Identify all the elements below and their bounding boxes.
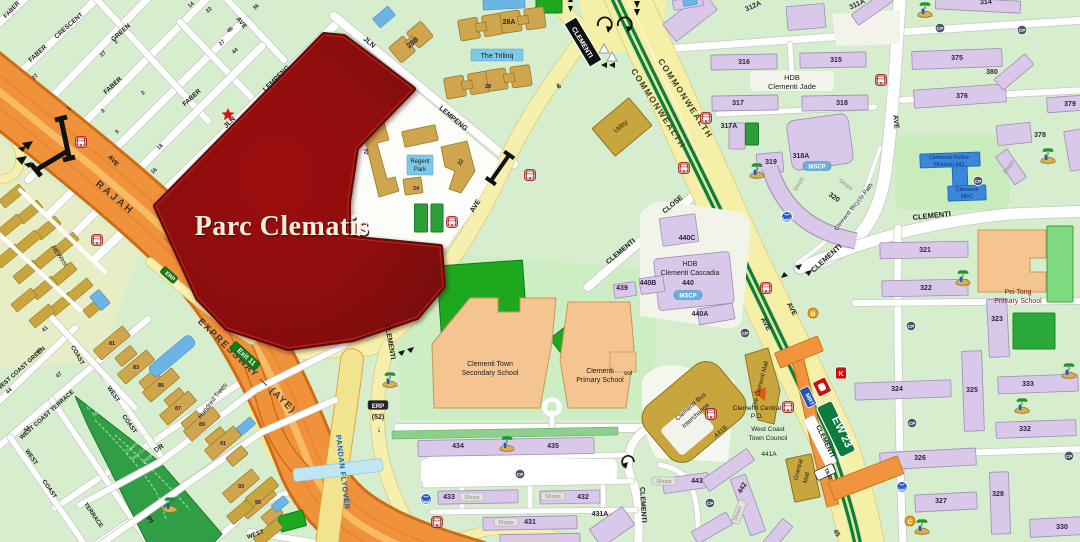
svg-text:317A: 317A <box>721 123 738 130</box>
svg-text:375: 375 <box>951 55 963 62</box>
svg-text:332: 332 <box>1019 426 1031 433</box>
svg-text:Division HQ: Division HQ <box>934 162 965 168</box>
svg-text:Clementi: Clementi <box>956 187 979 193</box>
svg-text:432: 432 <box>577 494 589 501</box>
svg-text:CP: CP <box>937 26 944 32</box>
svg-text:431A: 431A <box>592 511 609 518</box>
svg-text:Clementi Town: Clementi Town <box>467 361 513 368</box>
svg-text:440: 440 <box>682 280 694 287</box>
svg-text:440B: 440B <box>640 280 657 287</box>
svg-text:K: K <box>838 371 843 378</box>
svg-text:439: 439 <box>616 285 628 292</box>
svg-text:The Trilinq: The Trilinq <box>481 53 514 60</box>
svg-text:93: 93 <box>238 484 244 490</box>
svg-text:Clementi Central: Clementi Central <box>733 405 782 412</box>
svg-text:Clementi Police: Clementi Police <box>929 155 969 161</box>
svg-text:CP: CP <box>742 331 749 337</box>
svg-text:Shops: Shops <box>656 479 672 485</box>
svg-text:Pei Tong: Pei Tong <box>1004 289 1031 296</box>
svg-text:380: 380 <box>986 69 998 76</box>
svg-text:Primary School: Primary School <box>994 298 1042 305</box>
svg-text:B: B <box>811 311 816 318</box>
svg-text:431: 431 <box>524 519 536 526</box>
svg-text:24: 24 <box>413 186 420 192</box>
svg-text:28A: 28A <box>503 19 516 26</box>
svg-text:West Coast: West Coast <box>751 426 785 433</box>
svg-text:Shops: Shops <box>498 520 514 526</box>
svg-text:95: 95 <box>255 500 261 506</box>
svg-text:ool: ool <box>624 371 632 377</box>
svg-text:CP: CP <box>908 324 915 330</box>
svg-text:91: 91 <box>220 441 226 447</box>
svg-text:314: 314 <box>980 0 992 6</box>
svg-text:HDB: HDB <box>683 261 698 268</box>
svg-text:ERP: ERP <box>372 404 384 410</box>
svg-text:433: 433 <box>443 494 455 501</box>
svg-text:319: 319 <box>765 159 777 166</box>
svg-text:443: 443 <box>691 478 703 485</box>
svg-text:327: 327 <box>935 498 947 505</box>
svg-text:MSCP: MSCP <box>808 165 825 171</box>
svg-text:NPC: NPC <box>961 194 973 200</box>
svg-text:CP: CP <box>1066 454 1073 460</box>
svg-text:326: 326 <box>914 455 926 462</box>
svg-text:Clementi: Clementi <box>586 368 614 375</box>
svg-text:Shops: Shops <box>464 495 480 501</box>
svg-text:Town Council: Town Council <box>749 435 788 442</box>
svg-text:Primary School: Primary School <box>576 377 624 384</box>
svg-text:CP: CP <box>975 179 982 185</box>
svg-text:324: 324 <box>891 386 903 393</box>
svg-text:Secondary School: Secondary School <box>462 370 519 377</box>
svg-text:Park: Park <box>414 167 427 173</box>
svg-text:85: 85 <box>158 383 164 389</box>
svg-text:89: 89 <box>199 422 205 428</box>
svg-text:325: 325 <box>966 387 978 394</box>
svg-text:440A: 440A <box>692 311 709 318</box>
svg-text:441A: 441A <box>761 451 777 458</box>
svg-text:323: 323 <box>991 316 1003 323</box>
svg-text:435: 435 <box>547 443 559 450</box>
svg-text:Clementi Jade: Clementi Jade <box>768 82 816 91</box>
svg-text:Regent: Regent <box>410 159 430 165</box>
svg-text:↓: ↓ <box>377 424 382 434</box>
svg-text:317: 317 <box>732 100 744 107</box>
svg-text:26: 26 <box>364 148 371 155</box>
svg-text:376: 376 <box>956 93 968 100</box>
svg-text:434: 434 <box>452 443 464 450</box>
svg-text:321: 321 <box>919 247 931 254</box>
svg-text:322: 322 <box>920 285 932 292</box>
svg-text:Shops: Shops <box>545 494 561 500</box>
svg-text:440C: 440C <box>679 235 696 242</box>
svg-text:378: 378 <box>1034 132 1046 139</box>
svg-text:Clementi Cascadia: Clementi Cascadia <box>661 270 720 277</box>
svg-text:87: 87 <box>175 406 181 412</box>
svg-text:330: 330 <box>1056 524 1068 531</box>
svg-text:HDB: HDB <box>784 73 800 82</box>
svg-text:379: 379 <box>1064 101 1076 108</box>
svg-text:Parc Clematis: Parc Clematis <box>195 211 370 242</box>
svg-text:316: 316 <box>738 59 750 66</box>
svg-text:318: 318 <box>836 100 848 107</box>
svg-text:CP: CP <box>707 501 714 507</box>
svg-text:328: 328 <box>992 491 1004 498</box>
svg-text:CP: CP <box>909 421 916 427</box>
svg-text:CP: CP <box>517 472 524 478</box>
svg-text:C: C <box>908 519 913 526</box>
svg-text:318A: 318A <box>793 153 810 160</box>
svg-text:AVE: AVE <box>891 115 899 130</box>
svg-text:P.O.: P.O. <box>751 413 763 420</box>
svg-text:MSCP: MSCP <box>679 294 696 300</box>
svg-text:83: 83 <box>133 365 139 371</box>
svg-text:28: 28 <box>485 84 491 90</box>
svg-text:315: 315 <box>830 57 842 64</box>
svg-text:333: 333 <box>1022 381 1034 388</box>
svg-text:81: 81 <box>109 341 115 347</box>
svg-text:(52): (52) <box>372 414 384 421</box>
svg-text:CP: CP <box>1019 28 1026 34</box>
